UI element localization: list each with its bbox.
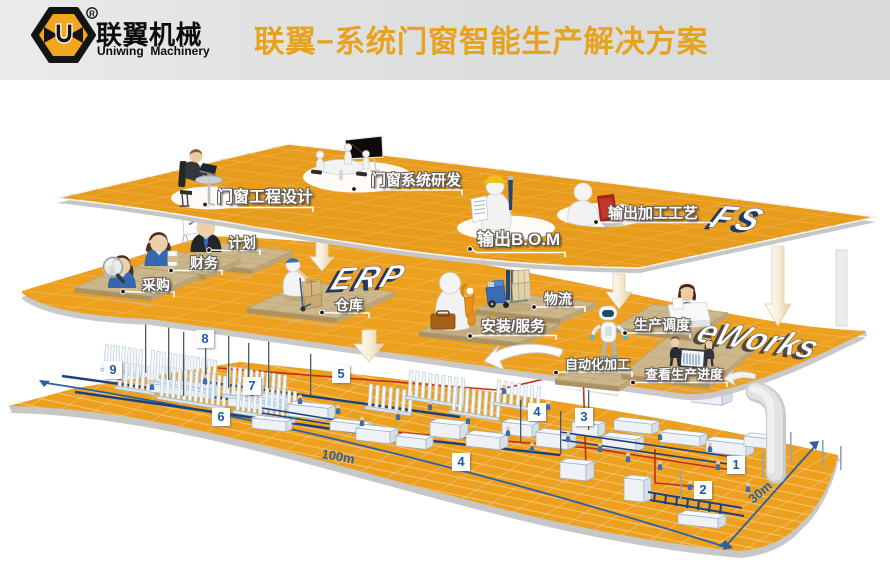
svg-text:R: R	[89, 10, 95, 19]
svg-text:ERP: ERP	[326, 258, 412, 297]
